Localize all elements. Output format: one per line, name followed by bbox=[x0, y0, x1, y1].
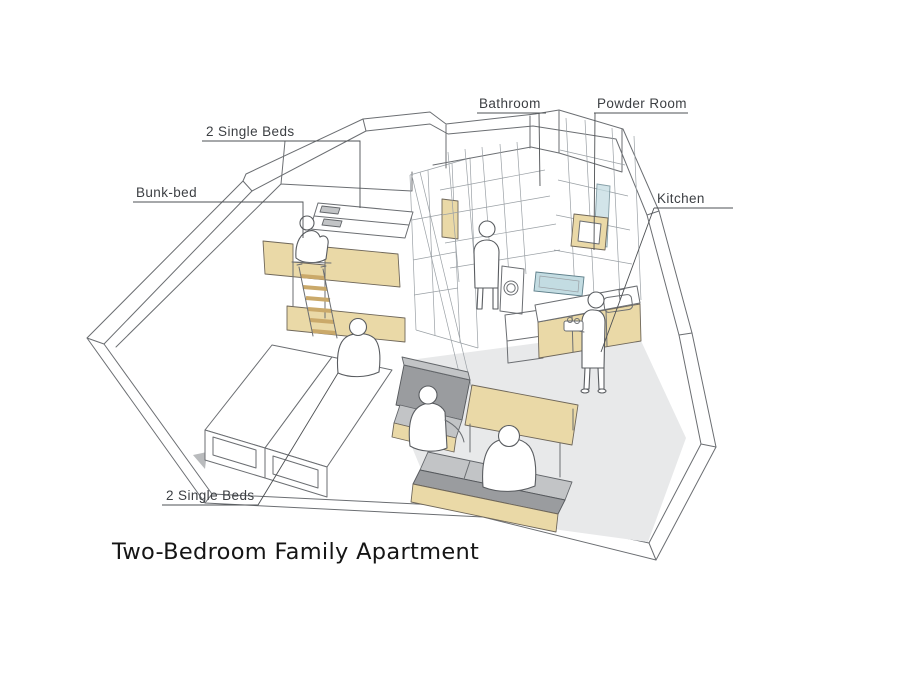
sketch-canvas: 2 Single Beds Bunk-bed Bathroom Powder R… bbox=[0, 0, 900, 675]
label-text: Kitchen bbox=[657, 191, 705, 206]
label-text: 2 Single Beds bbox=[206, 124, 295, 139]
apartment-diagram: 2 Single Beds Bunk-bed Bathroom Powder R… bbox=[0, 0, 900, 675]
label-text: Bathroom bbox=[479, 96, 541, 111]
vanity-mirror bbox=[578, 221, 601, 244]
closet-wood-panel bbox=[442, 199, 458, 239]
tray bbox=[564, 321, 583, 331]
diagram-title: Two-Bedroom Family Apartment bbox=[111, 539, 479, 565]
label-text: Bunk-bed bbox=[136, 185, 197, 200]
label-text: Powder Room bbox=[597, 96, 687, 111]
label-text: 2 Single Beds bbox=[166, 488, 255, 503]
washing-machine bbox=[500, 266, 524, 314]
